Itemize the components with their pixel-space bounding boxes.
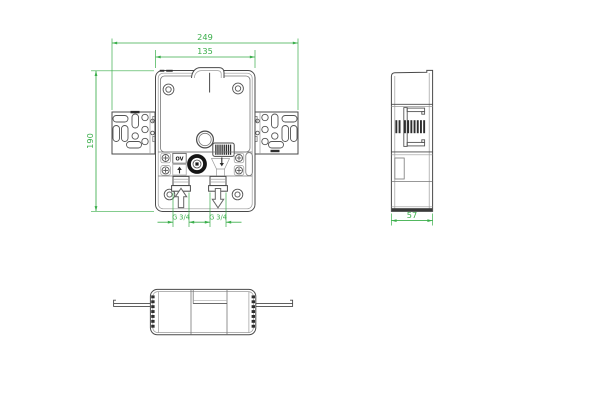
dimension-body-width: 135	[156, 46, 256, 68]
dim-inlet-thread-label: G 3/4	[172, 213, 190, 221]
right-bracket-wing	[255, 300, 293, 306]
valve-marking-label: OV	[176, 156, 184, 162]
bracket-marking	[271, 150, 280, 152]
left-bracket-wing	[114, 300, 151, 306]
front-view: OV	[112, 68, 298, 212]
knurled-cap	[213, 143, 234, 156]
shutoff-knob	[189, 156, 205, 172]
dim-body-width-label: 135	[197, 46, 213, 56]
dim-overall-width-label: 249	[197, 32, 213, 42]
dim-depth-label: 57	[407, 210, 417, 220]
left-mounting-bracket	[112, 111, 156, 154]
dim-overall-height-label: 190	[85, 133, 95, 149]
dim-outlet-thread-label: G 3/4	[209, 213, 227, 221]
top-markings	[160, 70, 173, 72]
bracket-marking	[131, 111, 140, 113]
bottom-view	[114, 289, 293, 334]
center-port	[197, 131, 214, 148]
right-mounting-bracket	[254, 112, 299, 154]
dimension-depth: 57	[391, 210, 432, 226]
technical-drawing: OV	[0, 0, 600, 420]
side-view	[391, 70, 432, 211]
